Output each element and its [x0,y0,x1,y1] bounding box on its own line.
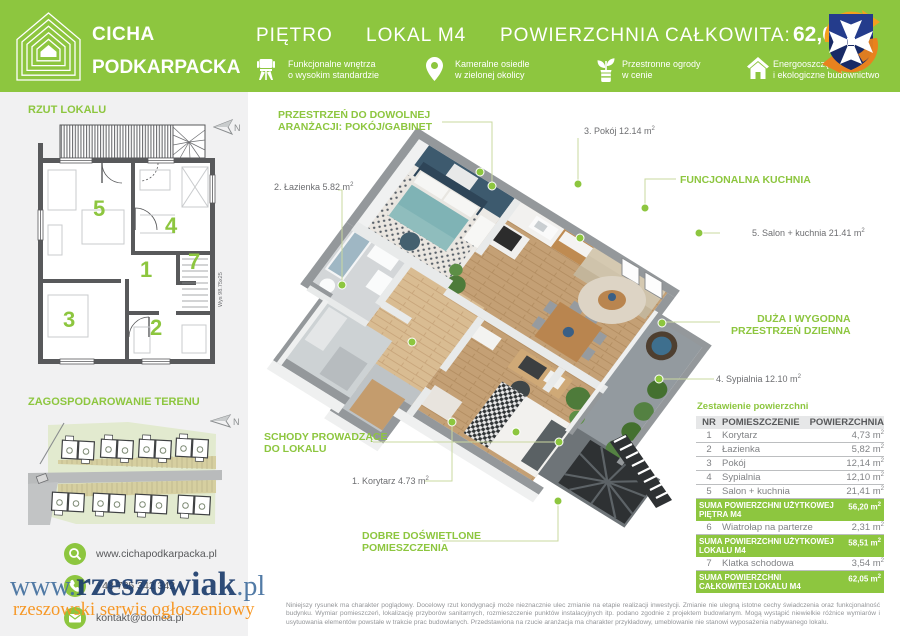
svg-text:4: 4 [165,213,178,238]
svg-text:5: 5 [93,196,105,221]
svg-text:3: 3 [63,307,75,332]
svg-text:7: 7 [188,249,200,274]
svg-text:N: N [233,417,240,427]
svg-text:2: 2 [150,315,162,340]
svg-text:Wys 98.75x25: Wys 98.75x25 [218,272,224,307]
svg-text:1: 1 [140,257,152,282]
